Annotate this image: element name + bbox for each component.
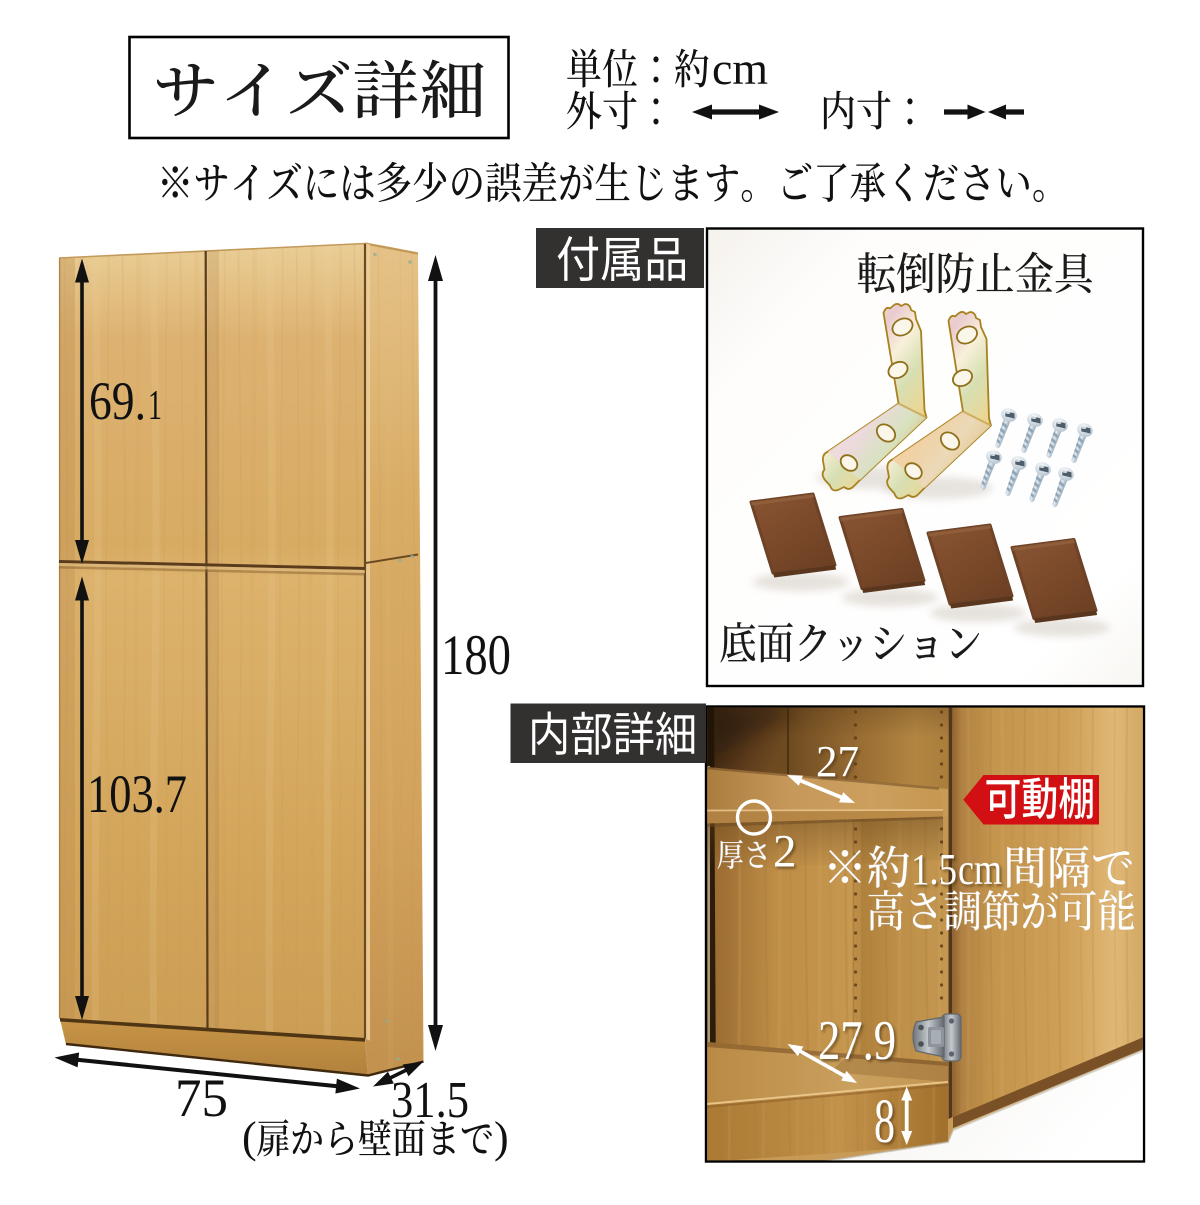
svg-text:): ) (494, 1113, 509, 1162)
svg-text:180: 180 (441, 624, 511, 687)
svg-text:27.9: 27.9 (818, 1010, 896, 1072)
svg-text:31.5: 31.5 (391, 1072, 469, 1129)
svg-text:75: 75 (175, 1068, 228, 1128)
svg-text:1.5: 1.5 (911, 845, 957, 894)
svg-text:103.7: 103.7 (87, 764, 187, 824)
svg-text:2: 2 (773, 826, 797, 878)
svg-text:cm: cm (712, 43, 768, 94)
svg-text:cm: cm (958, 845, 1002, 894)
svg-text:27: 27 (816, 737, 859, 786)
svg-text:(: ( (242, 1113, 257, 1162)
svg-text:1: 1 (148, 383, 162, 429)
svg-text:8: 8 (874, 1088, 895, 1156)
svg-text:69.: 69. (89, 371, 146, 431)
